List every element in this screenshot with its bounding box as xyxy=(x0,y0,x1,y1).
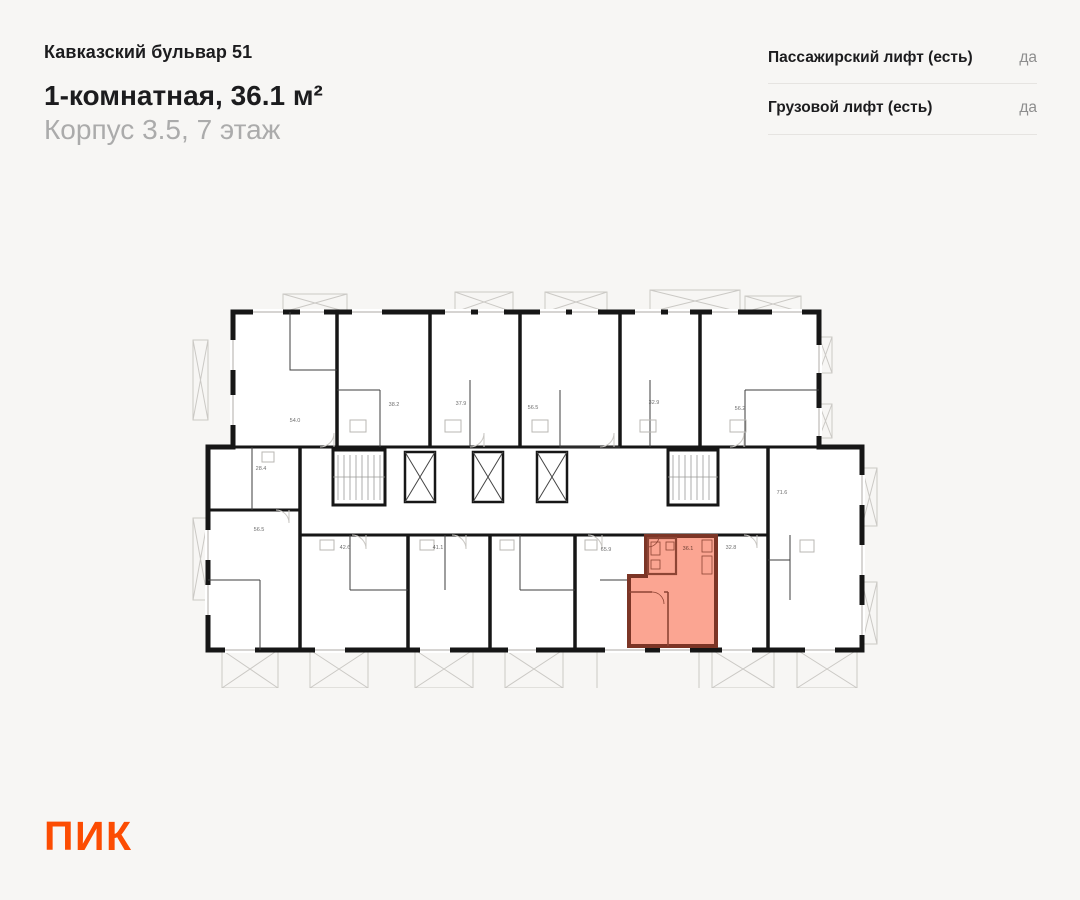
unit-area-label: 38.2 xyxy=(389,402,400,408)
unit-area-label: 41.1 xyxy=(433,545,444,551)
apartment-title: 1-комнатная, 36.1 м² xyxy=(44,81,323,112)
unit-area-label: 42.6 xyxy=(340,545,351,551)
unit-area-label: 32.8 xyxy=(726,545,737,551)
apartment-subtitle: Корпус 3.5, 7 этаж xyxy=(44,115,323,146)
unit-area-label: 71.6 xyxy=(777,490,788,496)
unit-area-label: 54.0 xyxy=(290,418,301,424)
info-label: Пассажирский лифт (есть) xyxy=(768,48,973,67)
info-row-passenger-lift: Пассажирский лифт (есть) да xyxy=(768,44,1037,84)
unit-area-label: 37.9 xyxy=(456,401,467,407)
floor-plan: 54.038.237.956.532.956.228.471.656.542.6… xyxy=(185,276,895,688)
info-row-cargo-lift: Грузовой лифт (есть) да xyxy=(768,94,1037,134)
unit-area-label: 65.9 xyxy=(601,547,612,553)
highlighted-unit-area-label: 36.1 xyxy=(683,546,694,552)
project-name: Кавказский бульвар 51 xyxy=(44,42,323,63)
unit-area-label: 56.5 xyxy=(528,405,539,411)
pik-logo-text: ПИК xyxy=(44,813,132,859)
unit-area-label: 32.9 xyxy=(649,400,660,406)
unit-area-label: 56.2 xyxy=(735,406,746,412)
info-value: да xyxy=(1009,48,1037,67)
lift-info-panel: Пассажирский лифт (есть) да Грузовой лиф… xyxy=(768,44,1037,145)
elevator-shafts xyxy=(405,452,567,502)
info-value: да xyxy=(1009,98,1037,117)
unit-area-label: 28.4 xyxy=(256,466,267,472)
info-label: Грузовой лифт (есть) xyxy=(768,98,932,117)
header: Кавказский бульвар 51 1-комнатная, 36.1 … xyxy=(44,42,323,146)
building-outline xyxy=(208,312,862,650)
unit-area-label: 56.5 xyxy=(254,527,265,533)
pik-logo: ПИК xyxy=(44,816,132,857)
